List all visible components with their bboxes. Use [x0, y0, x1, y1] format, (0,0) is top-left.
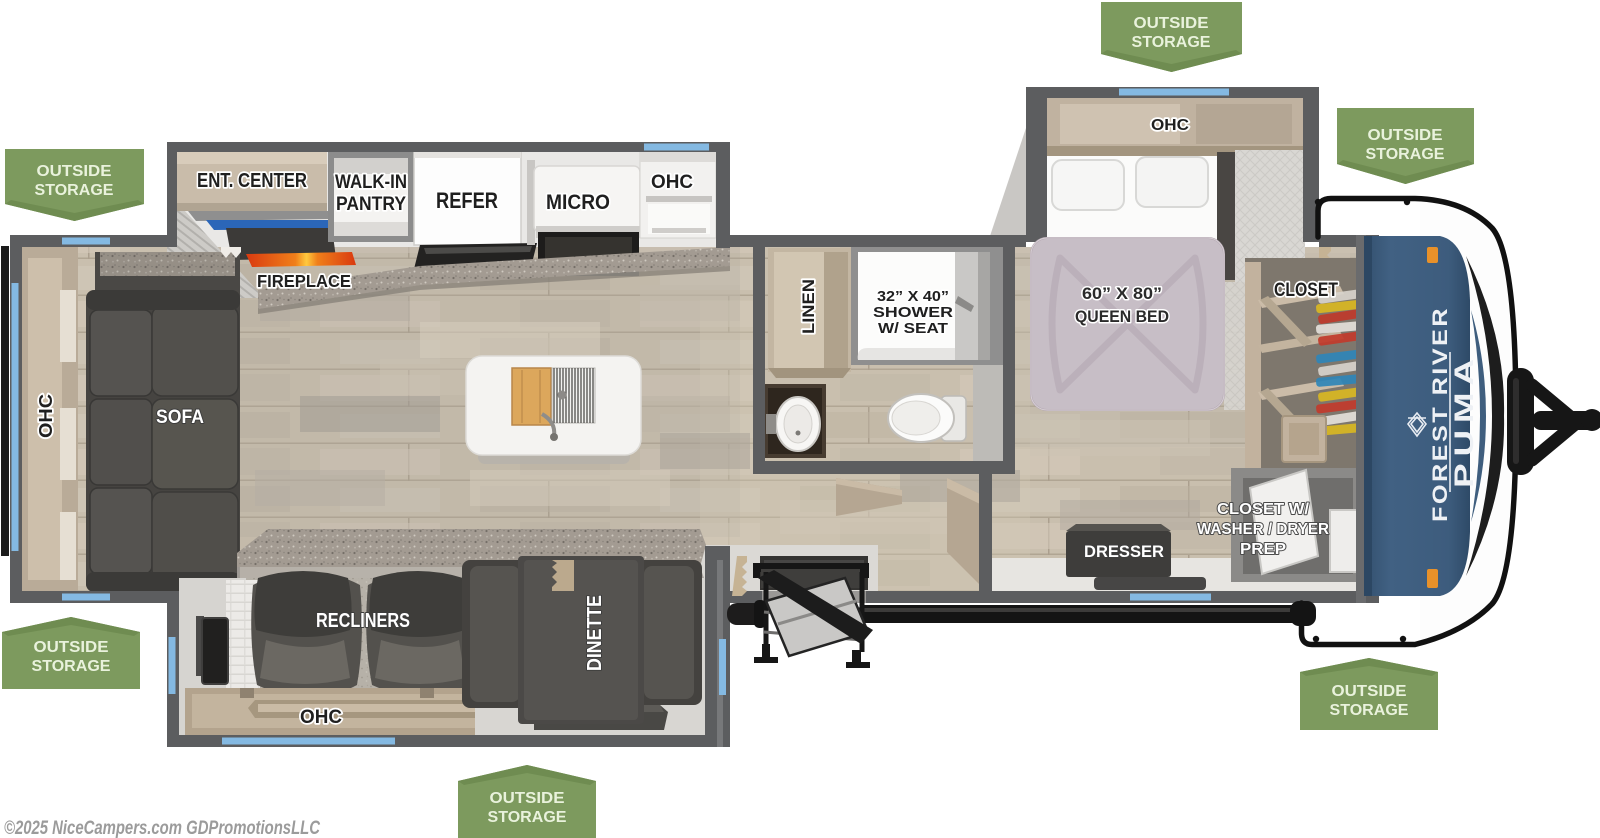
- svg-text:LINEN: LINEN: [799, 279, 818, 334]
- svg-text:60” X 80”: 60” X 80”: [1082, 284, 1162, 303]
- svg-text:REFER: REFER: [436, 188, 498, 213]
- svg-text:CLOSET: CLOSET: [1274, 280, 1338, 301]
- svg-text:CLOSET W/: CLOSET W/: [1217, 501, 1310, 518]
- svg-text:RECLINERS: RECLINERS: [316, 610, 410, 632]
- svg-text:PANTRY: PANTRY: [336, 194, 406, 215]
- svg-text:ENT. CENTER: ENT. CENTER: [197, 170, 307, 192]
- svg-text:SHOWER: SHOWER: [873, 304, 953, 321]
- svg-text:©2025 NiceCampers.com GDPromot: ©2025 NiceCampers.com GDPromotionsLLC: [4, 818, 320, 838]
- svg-text:OUTSIDE: OUTSIDE: [37, 163, 112, 180]
- svg-text:OUTSIDE: OUTSIDE: [1368, 127, 1443, 144]
- svg-text:32” X 40”: 32” X 40”: [877, 288, 949, 305]
- svg-text:STORAGE: STORAGE: [1366, 146, 1445, 163]
- svg-text:OUTSIDE: OUTSIDE: [34, 639, 109, 656]
- svg-text:STORAGE: STORAGE: [488, 809, 567, 826]
- svg-text:PUMA: PUMA: [1449, 352, 1479, 488]
- svg-text:DRESSER: DRESSER: [1084, 542, 1164, 561]
- svg-text:OHC: OHC: [36, 394, 56, 438]
- svg-text:MICRO: MICRO: [546, 191, 610, 214]
- svg-text:SOFA: SOFA: [156, 407, 204, 428]
- svg-text:STORAGE: STORAGE: [35, 182, 114, 199]
- svg-text:STORAGE: STORAGE: [32, 658, 111, 675]
- svg-text:DINETTE: DINETTE: [584, 595, 606, 671]
- svg-text:OUTSIDE: OUTSIDE: [490, 790, 565, 807]
- svg-text:WALK-IN: WALK-IN: [335, 172, 407, 193]
- svg-text:OUTSIDE: OUTSIDE: [1134, 15, 1209, 32]
- svg-text:OHC: OHC: [1151, 117, 1189, 134]
- svg-text:FIREPLACE: FIREPLACE: [257, 271, 351, 291]
- svg-text:STORAGE: STORAGE: [1132, 34, 1211, 51]
- svg-text:QUEEN BED: QUEEN BED: [1075, 307, 1169, 326]
- svg-text:OHC: OHC: [300, 707, 342, 728]
- svg-text:OUTSIDE: OUTSIDE: [1332, 683, 1407, 700]
- svg-text:WASHER / DRYER: WASHER / DRYER: [1197, 521, 1329, 538]
- svg-text:W/ SEAT: W/ SEAT: [878, 320, 948, 337]
- svg-text:PREP: PREP: [1240, 541, 1286, 558]
- svg-text:OHC: OHC: [651, 172, 693, 193]
- svg-text:STORAGE: STORAGE: [1330, 702, 1409, 719]
